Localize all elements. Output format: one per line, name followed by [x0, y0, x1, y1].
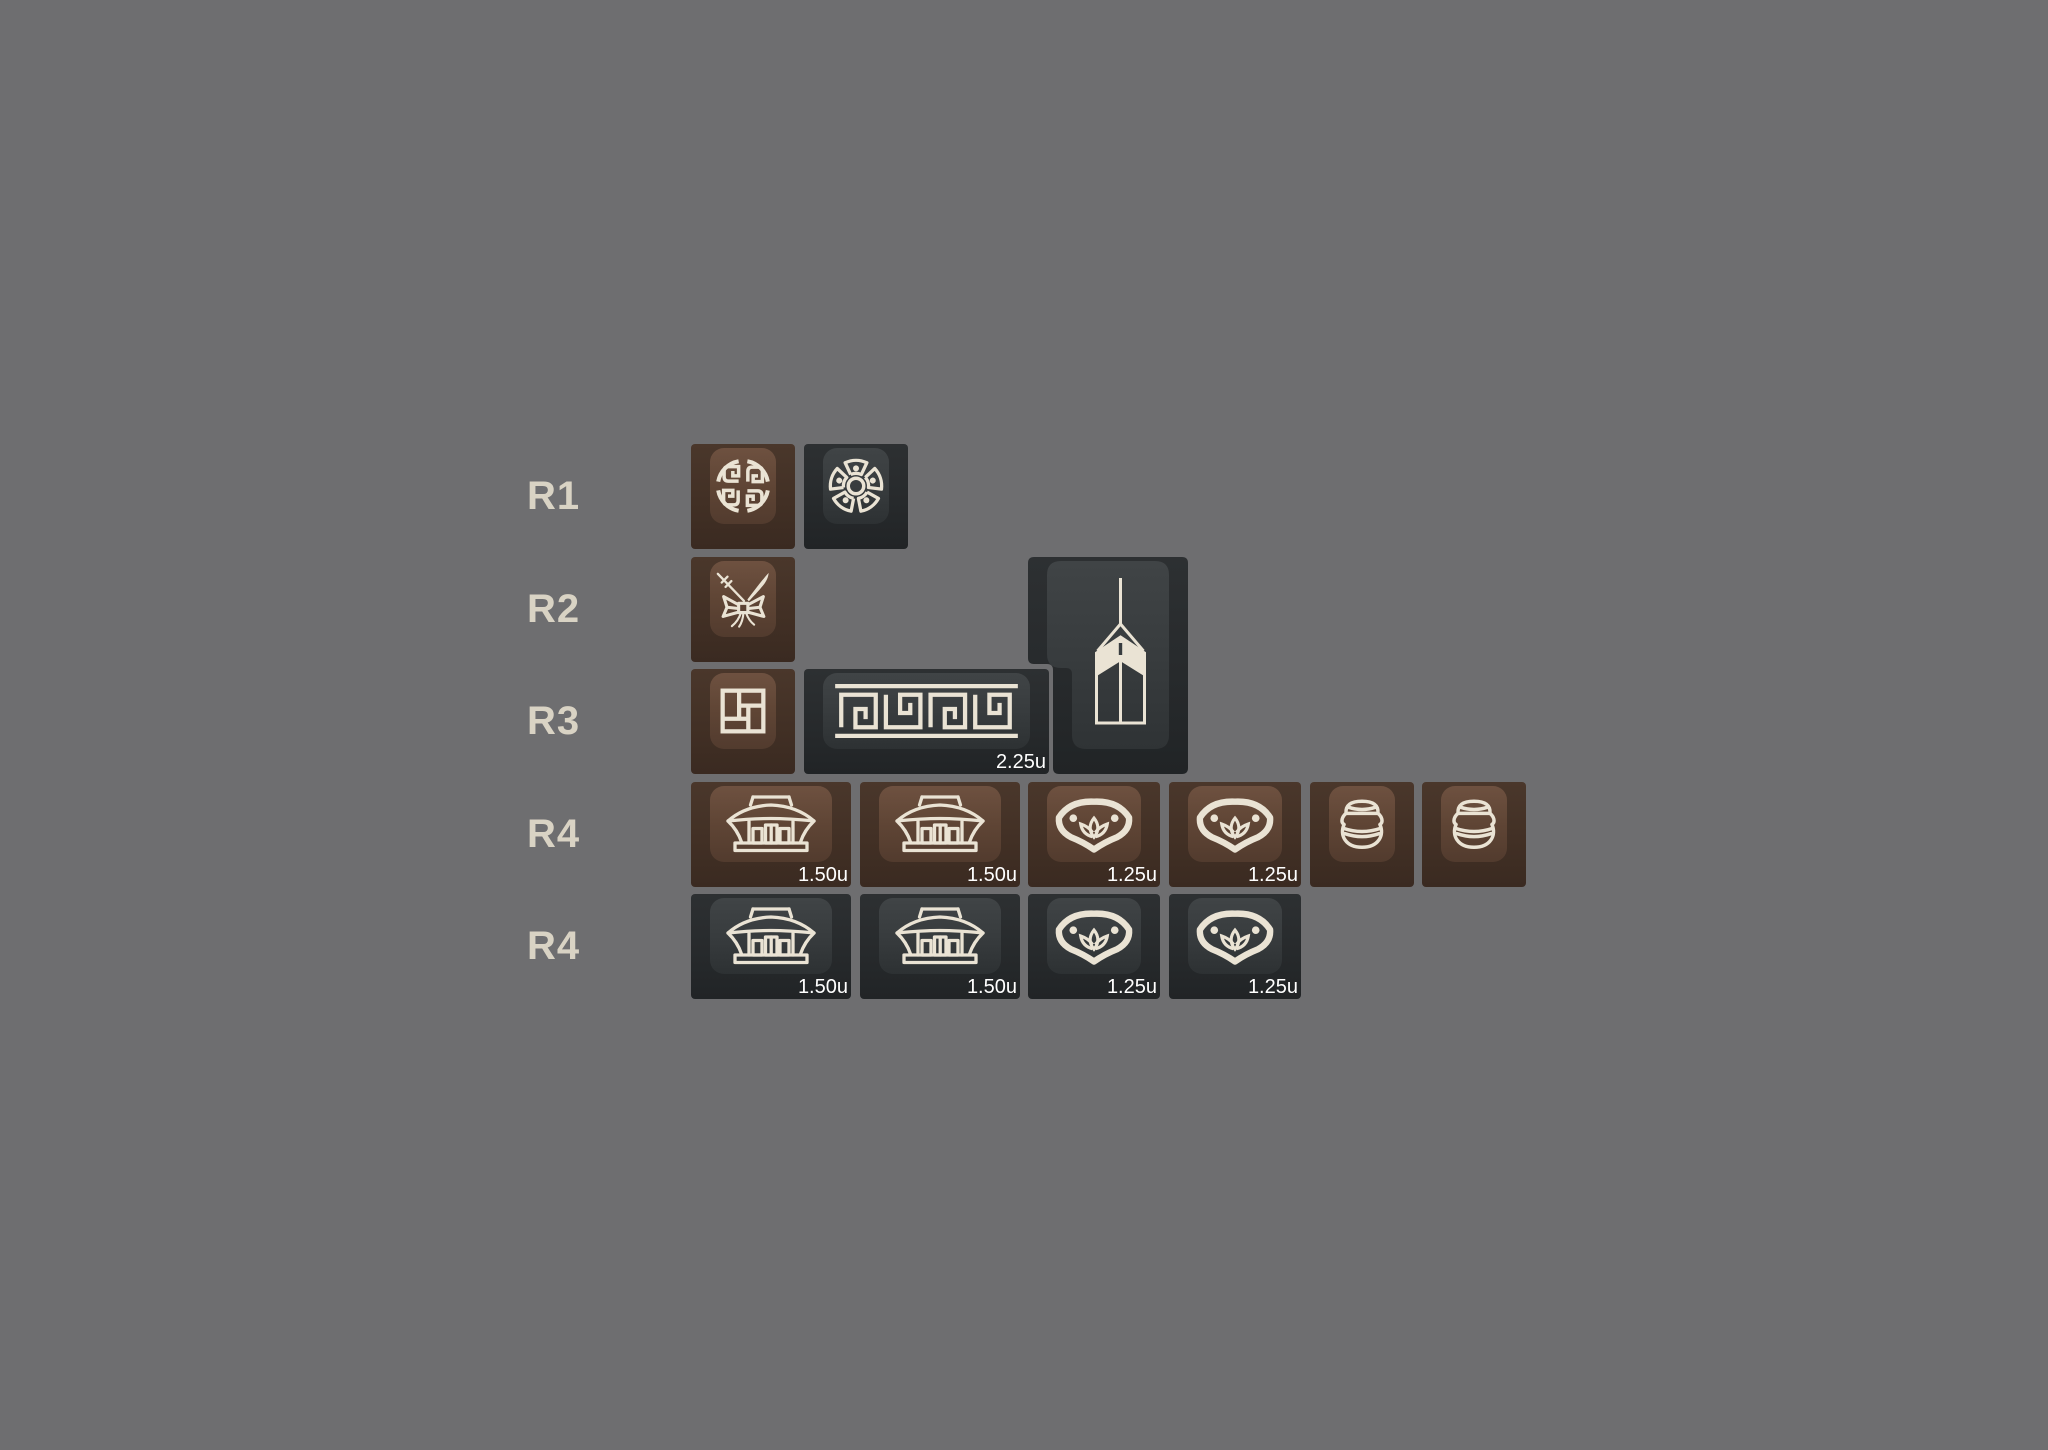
keycap-jar[interactable] — [1310, 782, 1414, 887]
ribbon-bow-icon — [712, 565, 774, 633]
keycap-meander-225u[interactable]: 2.25u — [804, 669, 1049, 774]
keycap-jar[interactable] — [1422, 782, 1526, 887]
lotus-collar-icon — [1049, 902, 1139, 970]
lotus-collar-icon — [1049, 790, 1139, 858]
coin-wheel-icon — [825, 452, 887, 520]
keycap-lotus-125u[interactable]: 1.25u — [1028, 894, 1160, 999]
keycap-temple-150u[interactable]: 1.50u — [691, 782, 851, 887]
key-size-label: 1.50u — [967, 977, 1017, 997]
key-size-label: 1.50u — [798, 865, 848, 885]
keycap-lotus-125u[interactable]: 1.25u — [1169, 894, 1301, 999]
key-size-label: 1.50u — [798, 977, 848, 997]
temple-icon — [881, 790, 999, 858]
keycap-temple-150u[interactable]: 1.50u — [860, 894, 1020, 999]
keycap-iso-enter-pendant[interactable] — [1028, 557, 1188, 774]
key-size-label: 1.25u — [1107, 865, 1157, 885]
row-label-r4a: R4 — [527, 782, 580, 887]
lotus-collar-icon — [1190, 902, 1280, 970]
brick-pinwheel-icon — [712, 677, 774, 745]
keycap-lotus-125u[interactable]: 1.25u — [1169, 782, 1301, 887]
temple-icon — [881, 902, 999, 970]
keycap-medallion[interactable] — [691, 444, 795, 549]
row-label-r3: R3 — [527, 669, 580, 774]
key-size-label: 2.25u — [996, 752, 1046, 772]
onggi-jar-icon — [1331, 790, 1393, 858]
key-size-label: 1.25u — [1248, 865, 1298, 885]
keycap-temple-150u[interactable]: 1.50u — [860, 782, 1020, 887]
row-label-r2: R2 — [527, 557, 580, 662]
meander-border-icon — [825, 677, 1028, 745]
row-label-r1: R1 — [527, 444, 580, 549]
temple-icon — [712, 902, 830, 970]
row-label-r4b: R4 — [527, 894, 580, 999]
keycap-kit-canvas: R1 R2 R3 R4 R4 — [0, 0, 2048, 1450]
lotus-collar-icon — [1190, 790, 1280, 858]
keycap-temple-150u[interactable]: 1.50u — [691, 894, 851, 999]
onggi-jar-icon — [1443, 790, 1505, 858]
keycap-brick-pinwheel[interactable] — [691, 669, 795, 774]
keycap-coin-wheel[interactable] — [804, 444, 908, 549]
longevity-medallion-icon — [712, 452, 774, 520]
key-size-label: 1.50u — [967, 865, 1017, 885]
key-size-label: 1.25u — [1107, 977, 1157, 997]
key-size-label: 1.25u — [1248, 977, 1298, 997]
keycap-ribbon-bow[interactable] — [691, 557, 795, 662]
temple-icon — [712, 790, 830, 858]
keycap-lotus-125u[interactable]: 1.25u — [1028, 782, 1160, 887]
